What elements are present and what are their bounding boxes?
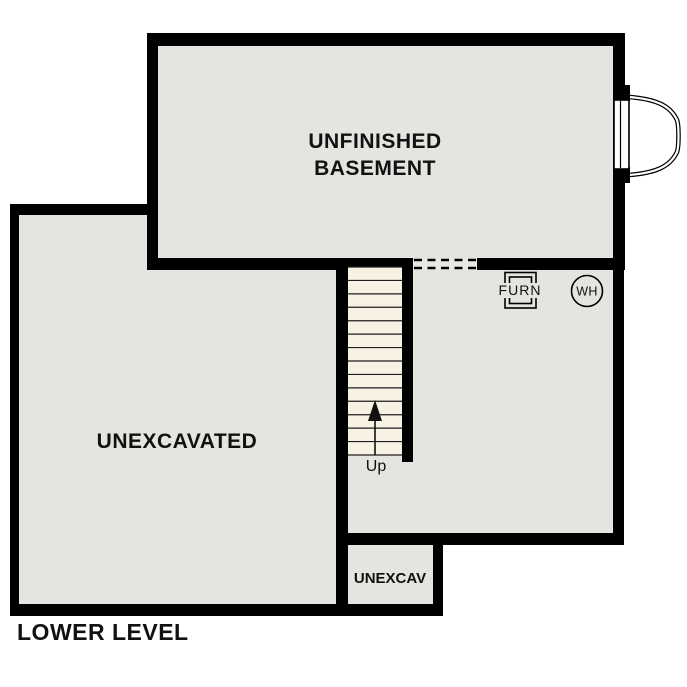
furnace-label: FURN (499, 282, 542, 298)
basement-label-line1: UNFINISHED (308, 130, 441, 153)
window-well (629, 97, 679, 175)
up-label: Up (366, 458, 387, 475)
water-heater-label: WH (576, 285, 597, 299)
unexcavated-label: UNEXCAVATED (97, 430, 258, 453)
unexcav-small-label: UNEXCAV (354, 570, 426, 587)
floor-plan: FURN WH UNFINISHED BASEMENT UNEXCAVATED … (0, 0, 687, 687)
basement-window (614, 100, 629, 169)
floor-unexcavated (19, 215, 336, 604)
plan-title: LOWER LEVEL (17, 619, 189, 645)
floor-plan-canvas: FURN WH UNFINISHED BASEMENT UNEXCAVATED … (0, 0, 687, 687)
basement-label-line2: BASEMENT (314, 157, 436, 180)
wall-stub-above-window (612, 85, 630, 101)
